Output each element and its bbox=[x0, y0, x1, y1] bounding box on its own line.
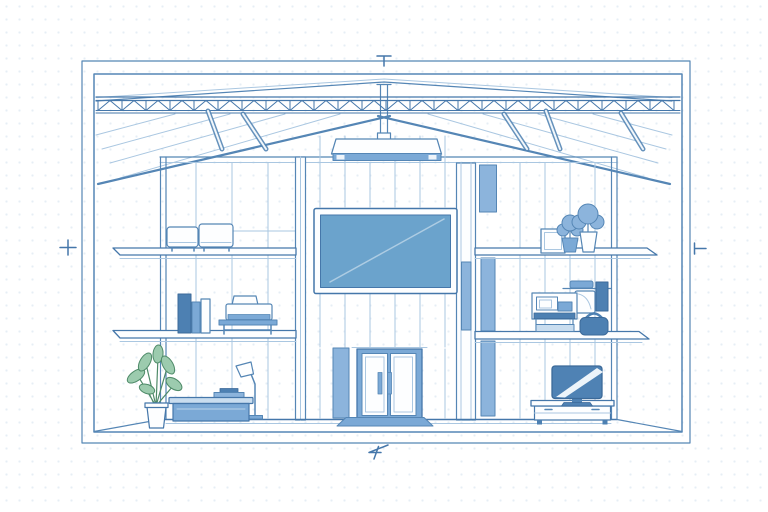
truss-web bbox=[98, 101, 674, 111]
plant2-pot bbox=[580, 232, 597, 252]
pendant-diffuser bbox=[333, 154, 441, 161]
book-medium bbox=[192, 302, 200, 333]
workstation-keyboard bbox=[534, 313, 575, 319]
console-foot bbox=[603, 420, 608, 425]
books bbox=[178, 294, 210, 333]
blue-strip-beside-screen bbox=[462, 262, 472, 330]
pendant-end-cap bbox=[337, 155, 345, 160]
door-handle-left bbox=[378, 373, 382, 395]
workstation-drawer bbox=[536, 325, 574, 332]
slab-middle-right bbox=[475, 332, 649, 340]
tv-on-console bbox=[531, 366, 614, 425]
pendant-light bbox=[332, 133, 442, 161]
book-dark bbox=[178, 294, 191, 333]
desk-item-dark bbox=[220, 389, 238, 393]
pendant-shade bbox=[332, 139, 442, 154]
door-handle-right bbox=[388, 373, 392, 395]
double-door bbox=[357, 349, 422, 420]
right-tick-icon bbox=[695, 243, 707, 254]
storage-box-1 bbox=[167, 227, 198, 247]
sideboard-desk bbox=[169, 389, 253, 422]
hutch-device bbox=[558, 302, 572, 311]
blue-panel-ground-right bbox=[481, 341, 495, 416]
book-white bbox=[201, 299, 210, 333]
storage-boxes bbox=[167, 224, 233, 251]
blue-panel-ground-left bbox=[333, 348, 349, 418]
plant1-pot bbox=[562, 238, 578, 252]
desk-body bbox=[173, 404, 249, 422]
storage-box-2 bbox=[199, 224, 233, 247]
shoulder-bag bbox=[580, 318, 608, 336]
pendant-end-cap bbox=[429, 155, 437, 160]
left-tick-icon bbox=[60, 240, 76, 255]
bottom-tick-icon bbox=[369, 445, 388, 459]
blue-panel-middle bbox=[481, 258, 495, 331]
shelf-plants bbox=[557, 204, 604, 252]
desk-top bbox=[169, 398, 253, 404]
printer-stand-top bbox=[219, 320, 277, 325]
wall-screen bbox=[314, 209, 457, 294]
floor-plant-pot bbox=[147, 407, 166, 428]
console-foot bbox=[537, 420, 542, 425]
king-post bbox=[377, 85, 391, 140]
cross-section-illustration bbox=[0, 0, 768, 512]
printer-front-band bbox=[228, 315, 270, 320]
workstation-dark-panel bbox=[596, 282, 608, 311]
right-wall bbox=[612, 157, 618, 420]
blueprint-canvas bbox=[0, 0, 768, 512]
roof bbox=[96, 79, 680, 184]
leaf bbox=[164, 375, 184, 394]
door-mat bbox=[337, 418, 433, 427]
furniture bbox=[125, 133, 614, 428]
lamp-pole bbox=[251, 374, 255, 417]
desktop-workstation bbox=[532, 281, 611, 335]
blue-panel-upper bbox=[480, 165, 497, 212]
floor-plant-pot-rim bbox=[145, 403, 168, 408]
tv-base bbox=[562, 403, 593, 407]
lamp-head bbox=[236, 362, 254, 377]
lamp-base bbox=[248, 416, 263, 420]
desk-item-pad bbox=[214, 393, 244, 398]
workstation-soundbar bbox=[570, 281, 593, 288]
plant2-foliage bbox=[578, 204, 598, 224]
workstation-monitor bbox=[575, 291, 595, 313]
